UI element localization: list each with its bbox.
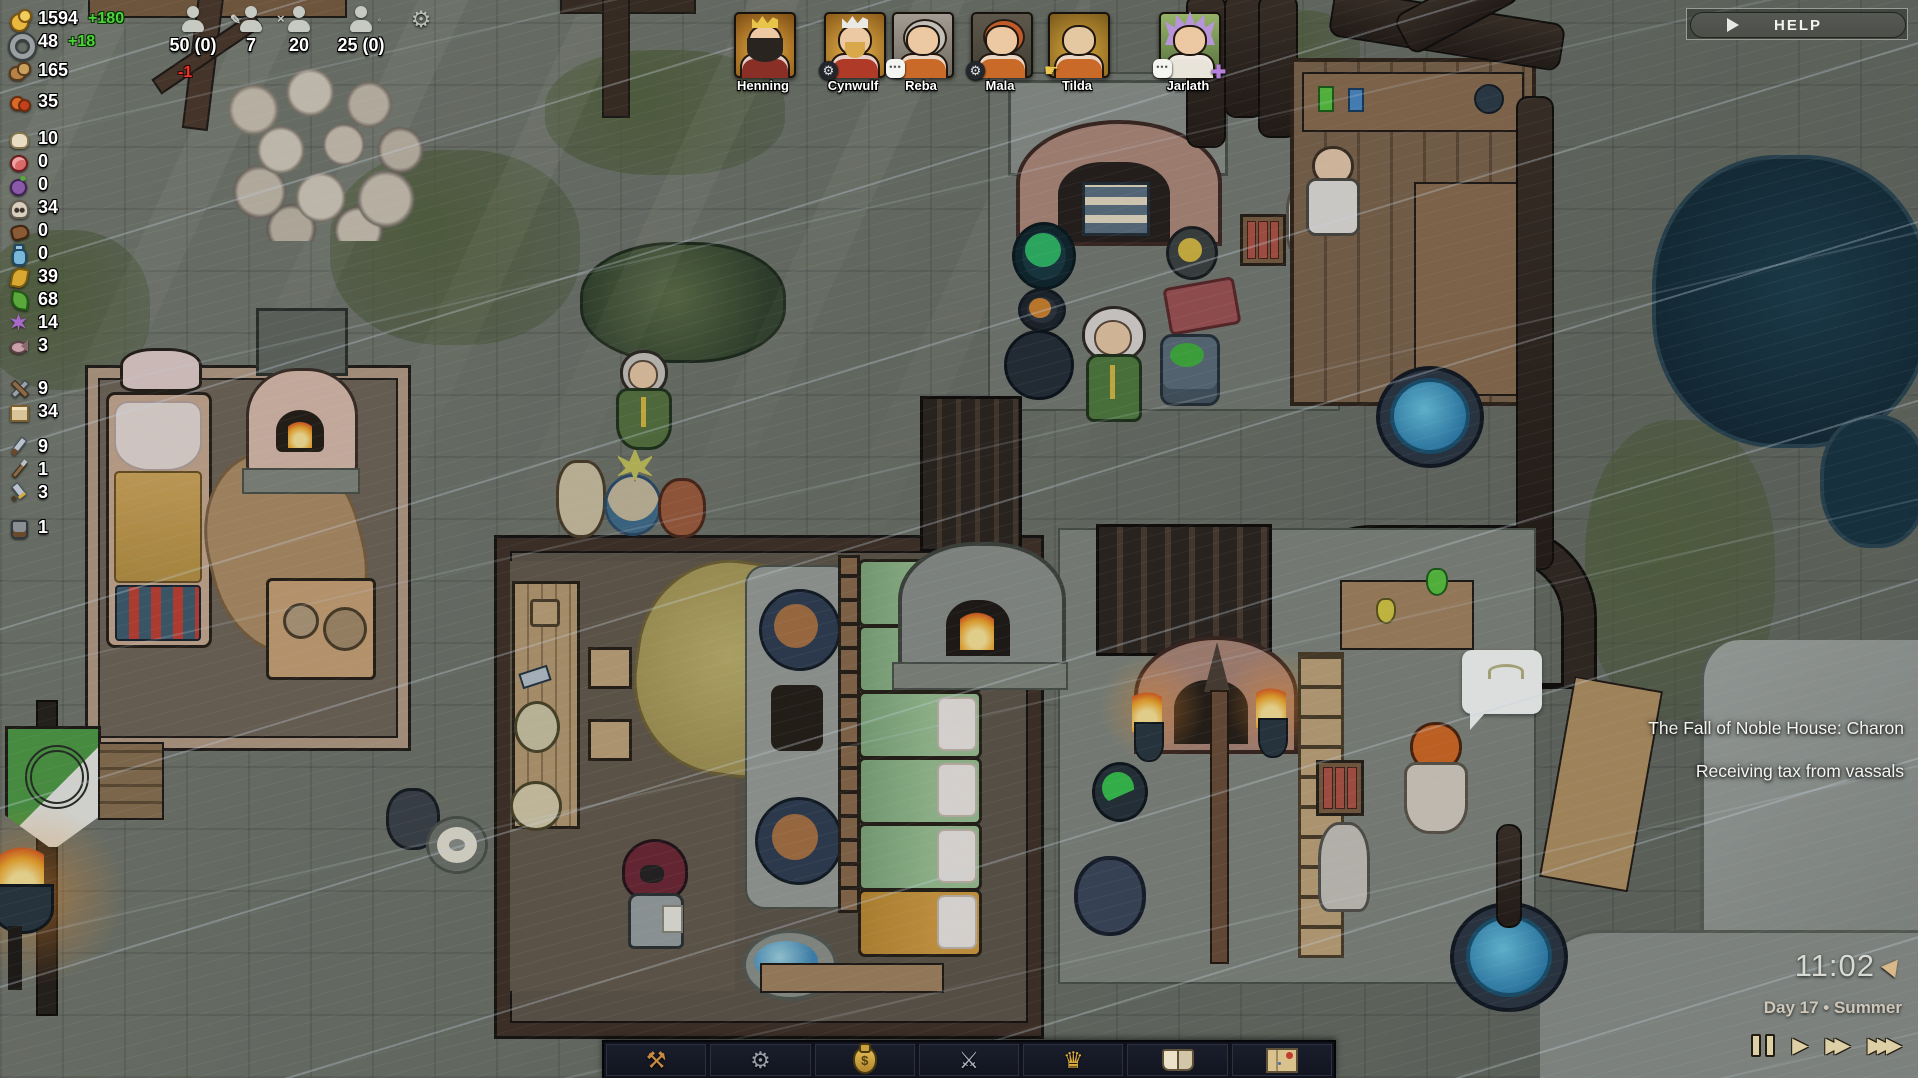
- torch-sconce: [1134, 722, 1164, 762]
- hooded-villager[interactable]: [618, 839, 688, 951]
- production-menu-button[interactable]: ⚙: [710, 1044, 810, 1076]
- speed-controls: ▶ ▶▶ ▶▶▶: [1751, 1034, 1902, 1057]
- crossed-swords-icon: ⚔: [959, 1049, 980, 1072]
- help-frame: HELP: [1686, 8, 1908, 40]
- spear-pole: [1210, 690, 1229, 964]
- bread-icon: [9, 61, 28, 80]
- resource-row-spears: 1: [9, 458, 124, 481]
- mortar: [1166, 226, 1218, 280]
- resource-value: 0: [38, 151, 48, 172]
- speech-bubble[interactable]: [1462, 650, 1542, 714]
- iron-ring-icon: [9, 32, 28, 51]
- portrait-tilda[interactable]: ☛: [1048, 12, 1110, 78]
- kingdom-menu-button[interactable]: ♛: [1023, 1044, 1123, 1076]
- stool[interactable]: [588, 647, 632, 689]
- portrait-beard: [747, 38, 783, 62]
- population-panel: 50 (0) ✎ 7 × 20 ◦ 25 (0) ⚙: [158, 6, 444, 56]
- wheat-icon: [9, 267, 28, 286]
- flour-bowl: [426, 816, 488, 874]
- resource-value: 1: [38, 459, 48, 480]
- cooking-pot: [755, 797, 843, 885]
- portrait-mala[interactable]: ⚙: [971, 12, 1033, 78]
- map-icon: [1266, 1048, 1298, 1073]
- money-bag-icon: $: [853, 1047, 877, 1074]
- military-menu-button[interactable]: ⚔: [919, 1044, 1019, 1076]
- resource-row-herbs: 68: [9, 288, 124, 311]
- resource-value: 0: [38, 174, 48, 195]
- portrait-name: Reba: [876, 78, 966, 93]
- workshop-bench: [1414, 182, 1524, 396]
- monk-villager[interactable]: [610, 350, 672, 446]
- bottle-shelf: [1316, 760, 1364, 816]
- portrait-cynwulf[interactable]: ⚙: [824, 12, 886, 78]
- furnace-fire: [960, 610, 994, 650]
- wood-post: [602, 0, 630, 118]
- workers-count: 7: [246, 35, 256, 56]
- play-icon: [1727, 18, 1739, 32]
- resource-row-plums: 0: [9, 173, 124, 196]
- resource-row-daggers: 9: [9, 435, 124, 458]
- barrel-green-mash: [1160, 334, 1220, 406]
- knowledge-menu-button[interactable]: [1127, 1044, 1227, 1076]
- parchment-icon: [9, 402, 28, 421]
- oven-fire: [288, 420, 312, 448]
- spear-tip: [1204, 642, 1230, 692]
- resource-value: 35: [38, 91, 58, 112]
- furnace-base: [892, 662, 1068, 690]
- person-family-icon: ◦: [346, 6, 376, 32]
- pipe-vertical: [1516, 96, 1554, 570]
- resource-row-fish: 3: [9, 334, 124, 357]
- portrait-reba[interactable]: •••: [892, 12, 954, 78]
- game-screen: 1594 +180 48 +18 165 35 10 0 0: [0, 0, 1918, 1078]
- bed-blanket: [114, 471, 202, 583]
- portrait-beard: [845, 42, 865, 58]
- hammer-icon: ⚒: [646, 1049, 667, 1072]
- play-speed-button[interactable]: ▶: [1792, 1035, 1808, 1056]
- villager-face: [628, 360, 658, 390]
- resource-row-gold: 1594 +180: [9, 7, 124, 30]
- resource-value: 3: [38, 335, 48, 356]
- gold-coins-icon: [9, 9, 28, 28]
- barrel-mash: [1170, 343, 1204, 367]
- item-icon: [1488, 664, 1524, 679]
- population-settings[interactable]: ⚙: [398, 6, 444, 33]
- gear-icon[interactable]: ⚙: [411, 6, 432, 33]
- resource-row-flowers: 14: [9, 311, 124, 334]
- hanging-bucket: [1074, 856, 1146, 936]
- clay-oven[interactable]: [246, 368, 352, 496]
- bed-ladder-frame: [838, 555, 860, 913]
- person-idle-icon: ×: [284, 6, 314, 32]
- mortar-grain: [1178, 238, 1202, 262]
- lake: [1652, 155, 1918, 448]
- robe-trim: [1110, 365, 1115, 399]
- vat-liquid: [1102, 772, 1134, 804]
- herb-leaf-icon: [9, 290, 28, 309]
- wind-arrow-icon: [1881, 954, 1905, 978]
- population-families: ◦ 25 (0): [324, 6, 398, 56]
- resource-value: 9: [38, 378, 48, 399]
- main-toolbar: ⚒ ⚙ $ ⚔ ♛: [602, 1040, 1336, 1078]
- resource-row-wheat: 39: [9, 265, 124, 288]
- person-working-icon: ✎: [236, 6, 266, 32]
- villager-robe: [616, 388, 672, 450]
- notification-event[interactable]: The Fall of Noble House: Charon: [1648, 718, 1904, 739]
- oven-chimney: [256, 308, 348, 376]
- resource-row-tools: 9: [9, 377, 124, 400]
- workshop-table[interactable]: [1302, 72, 1524, 132]
- planter-pot: [604, 474, 662, 536]
- build-menu-button[interactable]: ⚒: [606, 1044, 706, 1076]
- citizens-count: 50 (0): [169, 35, 216, 56]
- stool[interactable]: [588, 719, 632, 761]
- person-icon: [178, 6, 208, 32]
- idle-count: 20: [289, 35, 309, 56]
- resource-value: 48: [38, 31, 58, 52]
- pause-button[interactable]: [1751, 1034, 1775, 1057]
- resource-value: 39: [38, 266, 58, 287]
- berries-icon: [9, 92, 28, 111]
- firepit-mouth: [771, 685, 823, 751]
- fast-speed-button[interactable]: ▶▶: [1825, 1035, 1850, 1056]
- portrait-henning[interactable]: [734, 12, 796, 78]
- resource-row-potions: 0: [9, 242, 124, 265]
- workshop-villager[interactable]: [1304, 146, 1356, 238]
- portrait-body: [898, 53, 948, 78]
- lake-arm: [1820, 415, 1918, 548]
- barrel-water: [1390, 378, 1470, 454]
- help-label: HELP: [1774, 17, 1822, 34]
- leather-icon: [9, 221, 28, 240]
- headboard-ornament: [120, 348, 202, 392]
- bread-tray: [1082, 182, 1150, 236]
- pottery-table[interactable]: [266, 578, 376, 680]
- water-barrel[interactable]: [1376, 366, 1484, 468]
- portrait-jarlath[interactable]: ••• ✚: [1159, 12, 1221, 78]
- portrait-face: [1173, 25, 1207, 56]
- time-row: 11:02: [1751, 948, 1902, 984]
- population-citizens: 50 (0): [158, 6, 228, 56]
- green-vat: [1092, 762, 1148, 822]
- dormitory-bed[interactable]: [858, 757, 982, 825]
- villager-face: [1094, 320, 1132, 356]
- storage-chest[interactable]: [115, 585, 201, 641]
- skull-icon: [9, 198, 28, 217]
- pot-contents: [772, 814, 818, 860]
- clay-jug: [323, 607, 367, 651]
- resource-value: 9: [38, 436, 48, 457]
- pipe-organ-cluster: [920, 396, 1022, 552]
- villager-apron: [1404, 762, 1468, 834]
- barrel-pipe: [1496, 824, 1522, 928]
- resource-row-parchment: 34: [9, 400, 124, 423]
- bowl-stew: [1029, 298, 1051, 318]
- villager-body: [1306, 178, 1360, 236]
- resource-row-iron: 48 +18: [9, 30, 124, 53]
- portrait-body: [977, 53, 1027, 78]
- large-jug: [556, 460, 606, 538]
- citizens-delta: -1: [178, 64, 192, 82]
- game-world[interactable]: [0, 0, 1918, 1078]
- world-map-button[interactable]: [1232, 1044, 1332, 1076]
- bush[interactable]: [580, 242, 786, 363]
- speech-badge-icon: •••: [1153, 59, 1172, 78]
- resource-value: 0: [38, 220, 48, 241]
- dormitory-bed[interactable]: [858, 889, 982, 957]
- clock-panel: 11:02 Day 17 • Summer ▶ ▶▶ ▶▶▶: [1751, 948, 1902, 1057]
- cook-villager[interactable]: [1078, 306, 1144, 420]
- speech-bubble-tail: [1470, 712, 1486, 730]
- jug-pale: [514, 701, 560, 753]
- dagger-icon: [9, 437, 28, 456]
- clay-jug: [283, 603, 319, 639]
- crown-icon: [752, 16, 778, 28]
- portrait-name: Tilda: [1032, 78, 1122, 93]
- mug: [530, 599, 560, 627]
- resource-row-armor: 1: [9, 516, 124, 539]
- resource-row-berries: 35: [9, 90, 124, 113]
- cheese-icon: [9, 129, 28, 148]
- cooking-firepit[interactable]: [745, 565, 853, 909]
- resource-value: 3: [38, 482, 48, 503]
- clay-amphora: [658, 478, 706, 538]
- gear-icon: ⚙: [750, 1049, 771, 1072]
- bottle-shelf: [1240, 214, 1286, 266]
- resource-value: 165: [38, 60, 68, 81]
- date-display: Day 17 • Summer: [1751, 998, 1902, 1018]
- speech-badge-icon: •••: [886, 59, 905, 78]
- bed-pillow: [114, 401, 202, 471]
- time-display: 11:02: [1795, 948, 1875, 984]
- portrait-face: [1062, 25, 1096, 56]
- notification-event[interactable]: Receiving tax from vassals: [1648, 761, 1904, 782]
- potion-icon: [9, 244, 28, 263]
- portrait-face: [985, 25, 1019, 56]
- villager-face: [640, 865, 664, 883]
- resource-value: 1594: [38, 8, 78, 29]
- dormitory-bed[interactable]: [858, 823, 982, 891]
- copper-still: [1318, 822, 1370, 912]
- resource-value: 10: [38, 128, 58, 149]
- economy-menu-button[interactable]: $: [815, 1044, 915, 1076]
- resource-row-skulls: 34: [9, 196, 124, 219]
- open-book-icon: [1162, 1049, 1194, 1071]
- torch-stand: [8, 926, 22, 990]
- resource-value: 14: [38, 312, 58, 333]
- meat-icon: [9, 152, 28, 171]
- resource-value: 68: [38, 289, 58, 310]
- flower-icon: [9, 313, 28, 332]
- resource-value: 0: [38, 243, 48, 264]
- resource-row-bread: 165: [9, 59, 124, 82]
- alchemy-desk[interactable]: [1340, 580, 1474, 650]
- resource-row-cheese: 10: [9, 127, 124, 150]
- plums-icon: [9, 175, 28, 194]
- resource-delta: +18: [68, 33, 95, 51]
- water-barrel[interactable]: [1450, 902, 1568, 1012]
- tools-icon: [9, 379, 28, 398]
- resource-panel: 1594 +180 48 +18 165 35 10 0 0: [9, 7, 124, 539]
- portrait-body: [1165, 53, 1215, 78]
- sword-icon: [9, 483, 28, 502]
- pot-contents: [774, 604, 818, 648]
- population-idle: × 20: [274, 6, 324, 56]
- portrait-body: [1054, 53, 1104, 78]
- oven-base: [242, 468, 360, 494]
- armor-icon: [9, 518, 28, 537]
- robe-trim: [641, 397, 646, 427]
- stone-furnace[interactable]: [898, 542, 1062, 710]
- skull-pile[interactable]: [222, 66, 432, 241]
- distiller-villager[interactable]: [1402, 722, 1464, 830]
- notification-stack: The Fall of Noble House: Charon Receivin…: [1648, 718, 1904, 804]
- resource-delta: +180: [88, 10, 124, 28]
- building-workshop[interactable]: [1290, 58, 1536, 406]
- portrait-face: [906, 25, 940, 56]
- families-count: 25 (0): [337, 35, 384, 56]
- vat-liquid: [1025, 233, 1061, 267]
- resource-row-meat: 0: [9, 150, 124, 173]
- resource-row-swords: 3: [9, 481, 124, 504]
- portrait-name: Jarlath: [1143, 78, 1233, 93]
- portrait-name: Henning: [718, 78, 808, 93]
- teal-vat: [1012, 222, 1076, 290]
- resource-value: 34: [38, 401, 58, 422]
- resource-value: 1: [38, 517, 48, 538]
- bench[interactable]: [760, 963, 944, 993]
- villager-paper: [662, 905, 683, 933]
- villager-robe: [1086, 354, 1142, 422]
- fastest-speed-button[interactable]: ▶▶▶: [1868, 1035, 1902, 1056]
- resource-row-leather: 0: [9, 219, 124, 242]
- building-bedroom[interactable]: [88, 368, 408, 748]
- cooking-pot: [759, 589, 841, 671]
- help-button[interactable]: HELP: [1690, 12, 1906, 38]
- crown-icon: ♛: [1063, 1049, 1084, 1072]
- crown-icon: [842, 16, 868, 28]
- torch-sconce: [1258, 718, 1288, 758]
- fish-icon: [9, 336, 28, 355]
- black-kettle: [1004, 330, 1074, 400]
- bowl: [510, 781, 562, 831]
- spear-icon: [9, 460, 28, 479]
- resource-value: 34: [38, 197, 58, 218]
- orange-bowl: [1018, 288, 1066, 332]
- population-workers: ✎ 7: [228, 6, 274, 56]
